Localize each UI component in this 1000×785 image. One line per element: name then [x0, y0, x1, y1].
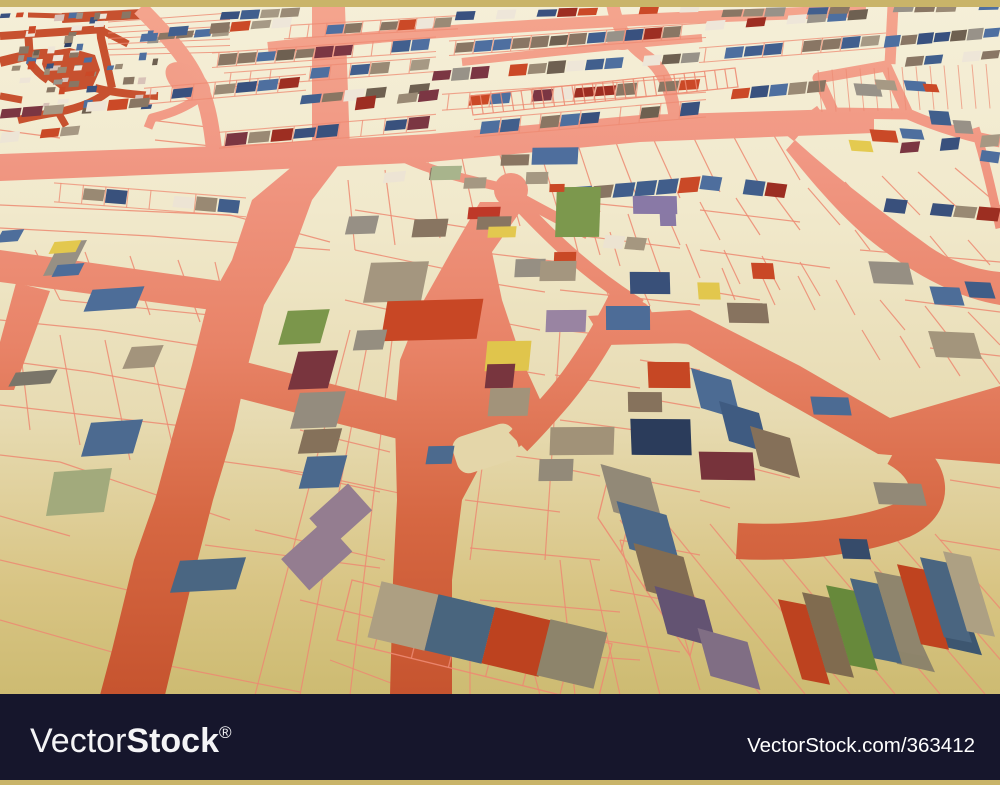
svg-text:VectorStock.com/363412: VectorStock.com/363412	[747, 734, 975, 757]
svg-text:VectorStock®: VectorStock®	[30, 722, 232, 760]
